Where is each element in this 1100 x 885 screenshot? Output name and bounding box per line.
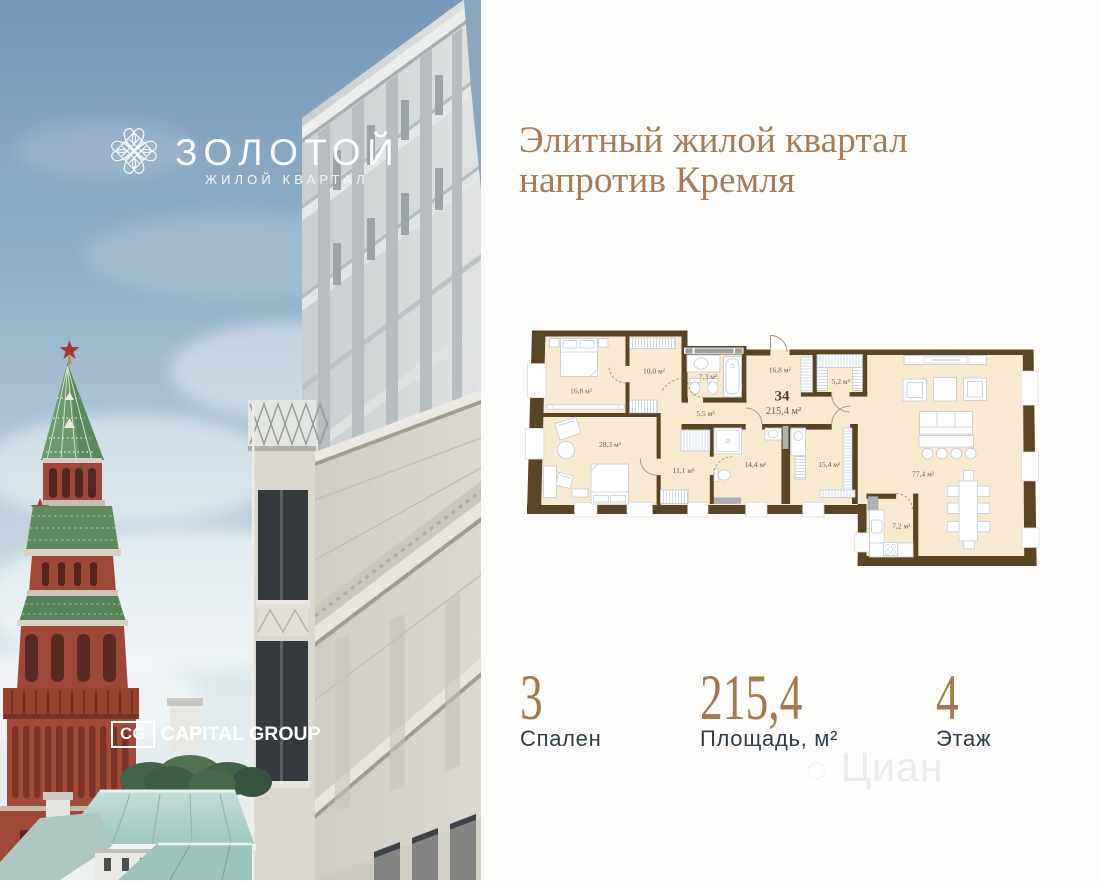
- svg-text:5,2 м²: 5,2 м²: [832, 377, 851, 386]
- svg-text:15,4 м²: 15,4 м²: [818, 460, 841, 469]
- svg-text:10,0 м²: 10,0 м²: [643, 367, 666, 376]
- svg-text:34: 34: [775, 389, 791, 405]
- svg-text:7,2 м²: 7,2 м²: [892, 521, 911, 530]
- svg-text:77,4 м²: 77,4 м²: [912, 470, 935, 479]
- svg-text:16,8 м²: 16,8 м²: [570, 387, 593, 396]
- svg-text:215,4 м²: 215,4 м²: [766, 406, 801, 417]
- svg-text:16,8 м²: 16,8 м²: [769, 365, 792, 374]
- svg-text:28,3 м²: 28,3 м²: [599, 440, 622, 449]
- svg-text:11,1 м²: 11,1 м²: [673, 466, 695, 475]
- svg-text:14,4 м²: 14,4 м²: [744, 460, 767, 469]
- svg-text:7,3 м²: 7,3 м²: [699, 372, 718, 381]
- svg-text:5,5 м²: 5,5 м²: [696, 409, 715, 418]
